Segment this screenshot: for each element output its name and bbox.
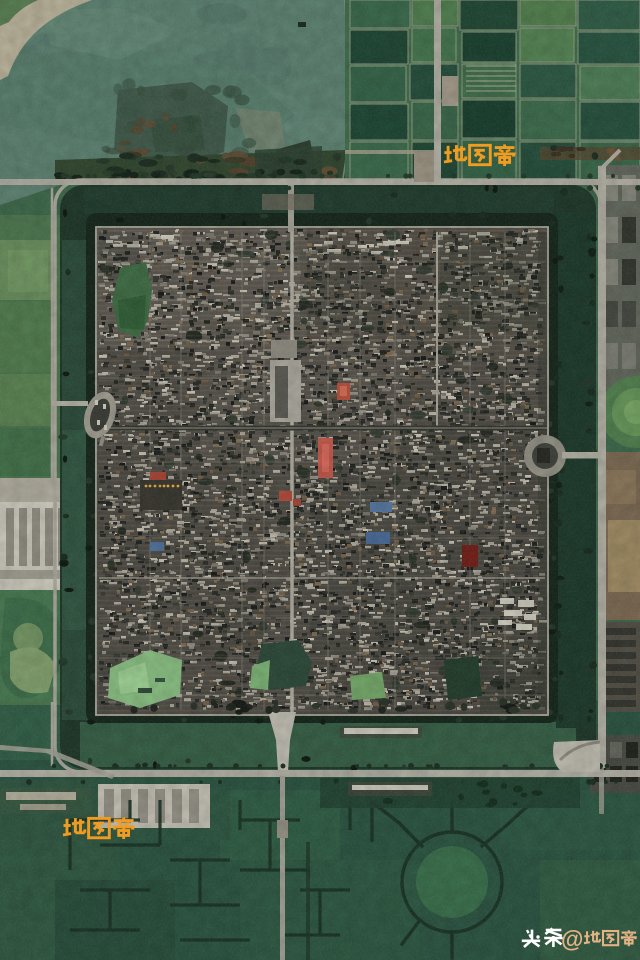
svg-text:@: @ [561,926,583,952]
